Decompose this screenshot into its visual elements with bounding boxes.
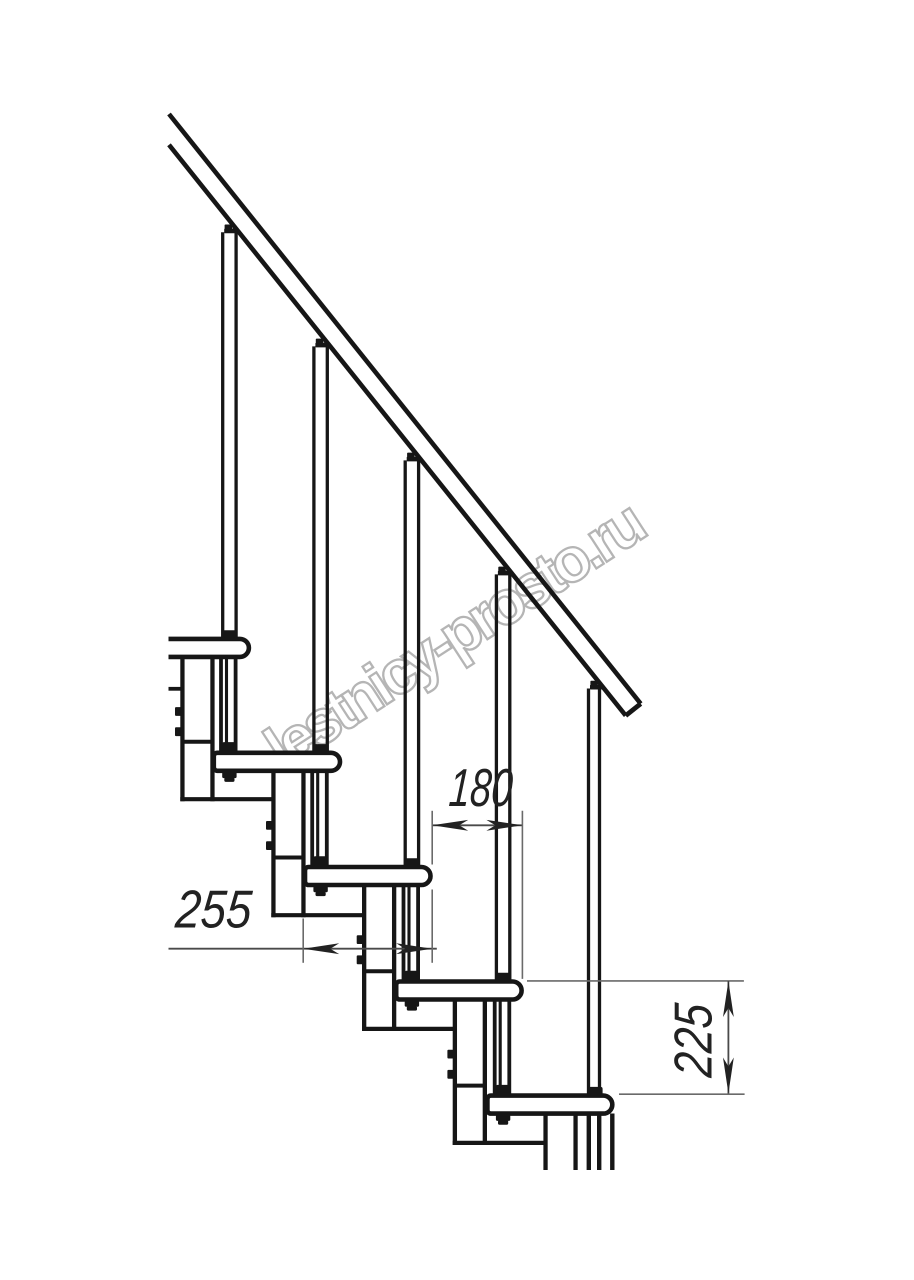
svg-text:180: 180 (447, 758, 515, 818)
svg-text:225: 225 (665, 1001, 724, 1080)
svg-text:255: 255 (173, 879, 254, 939)
